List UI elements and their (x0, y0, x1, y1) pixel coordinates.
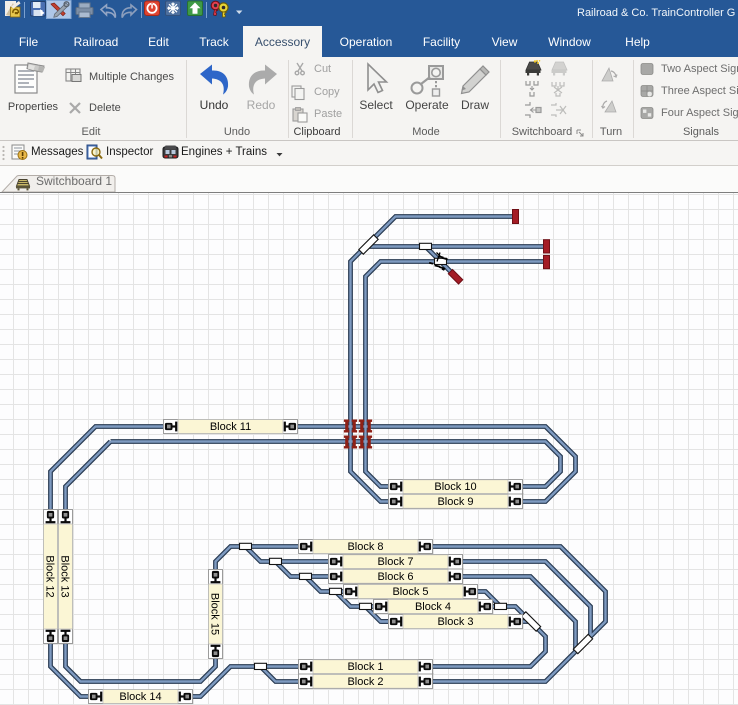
svg-text:Block 2: Block 2 (347, 676, 383, 688)
svg-text:Block 4: Block 4 (415, 601, 451, 613)
svg-text:Block 14: Block 14 (119, 691, 161, 703)
svg-text:Block 6: Block 6 (377, 571, 413, 583)
svg-text:Block 11: Block 11 (210, 421, 251, 433)
svg-text:Block 9: Block 9 (437, 496, 473, 508)
svg-text:Block 13: Block 13 (59, 555, 71, 597)
svg-text:Block 8: Block 8 (347, 541, 383, 553)
svg-text:Block 7: Block 7 (377, 556, 413, 568)
svg-text:Block 1: Block 1 (347, 661, 383, 673)
svg-text:Block 3: Block 3 (437, 616, 473, 628)
svg-text:Block 10: Block 10 (434, 481, 476, 493)
svg-text:Block 5: Block 5 (392, 586, 428, 598)
svg-text:Block 12: Block 12 (44, 555, 56, 597)
svg-text:Block 15: Block 15 (209, 593, 221, 635)
